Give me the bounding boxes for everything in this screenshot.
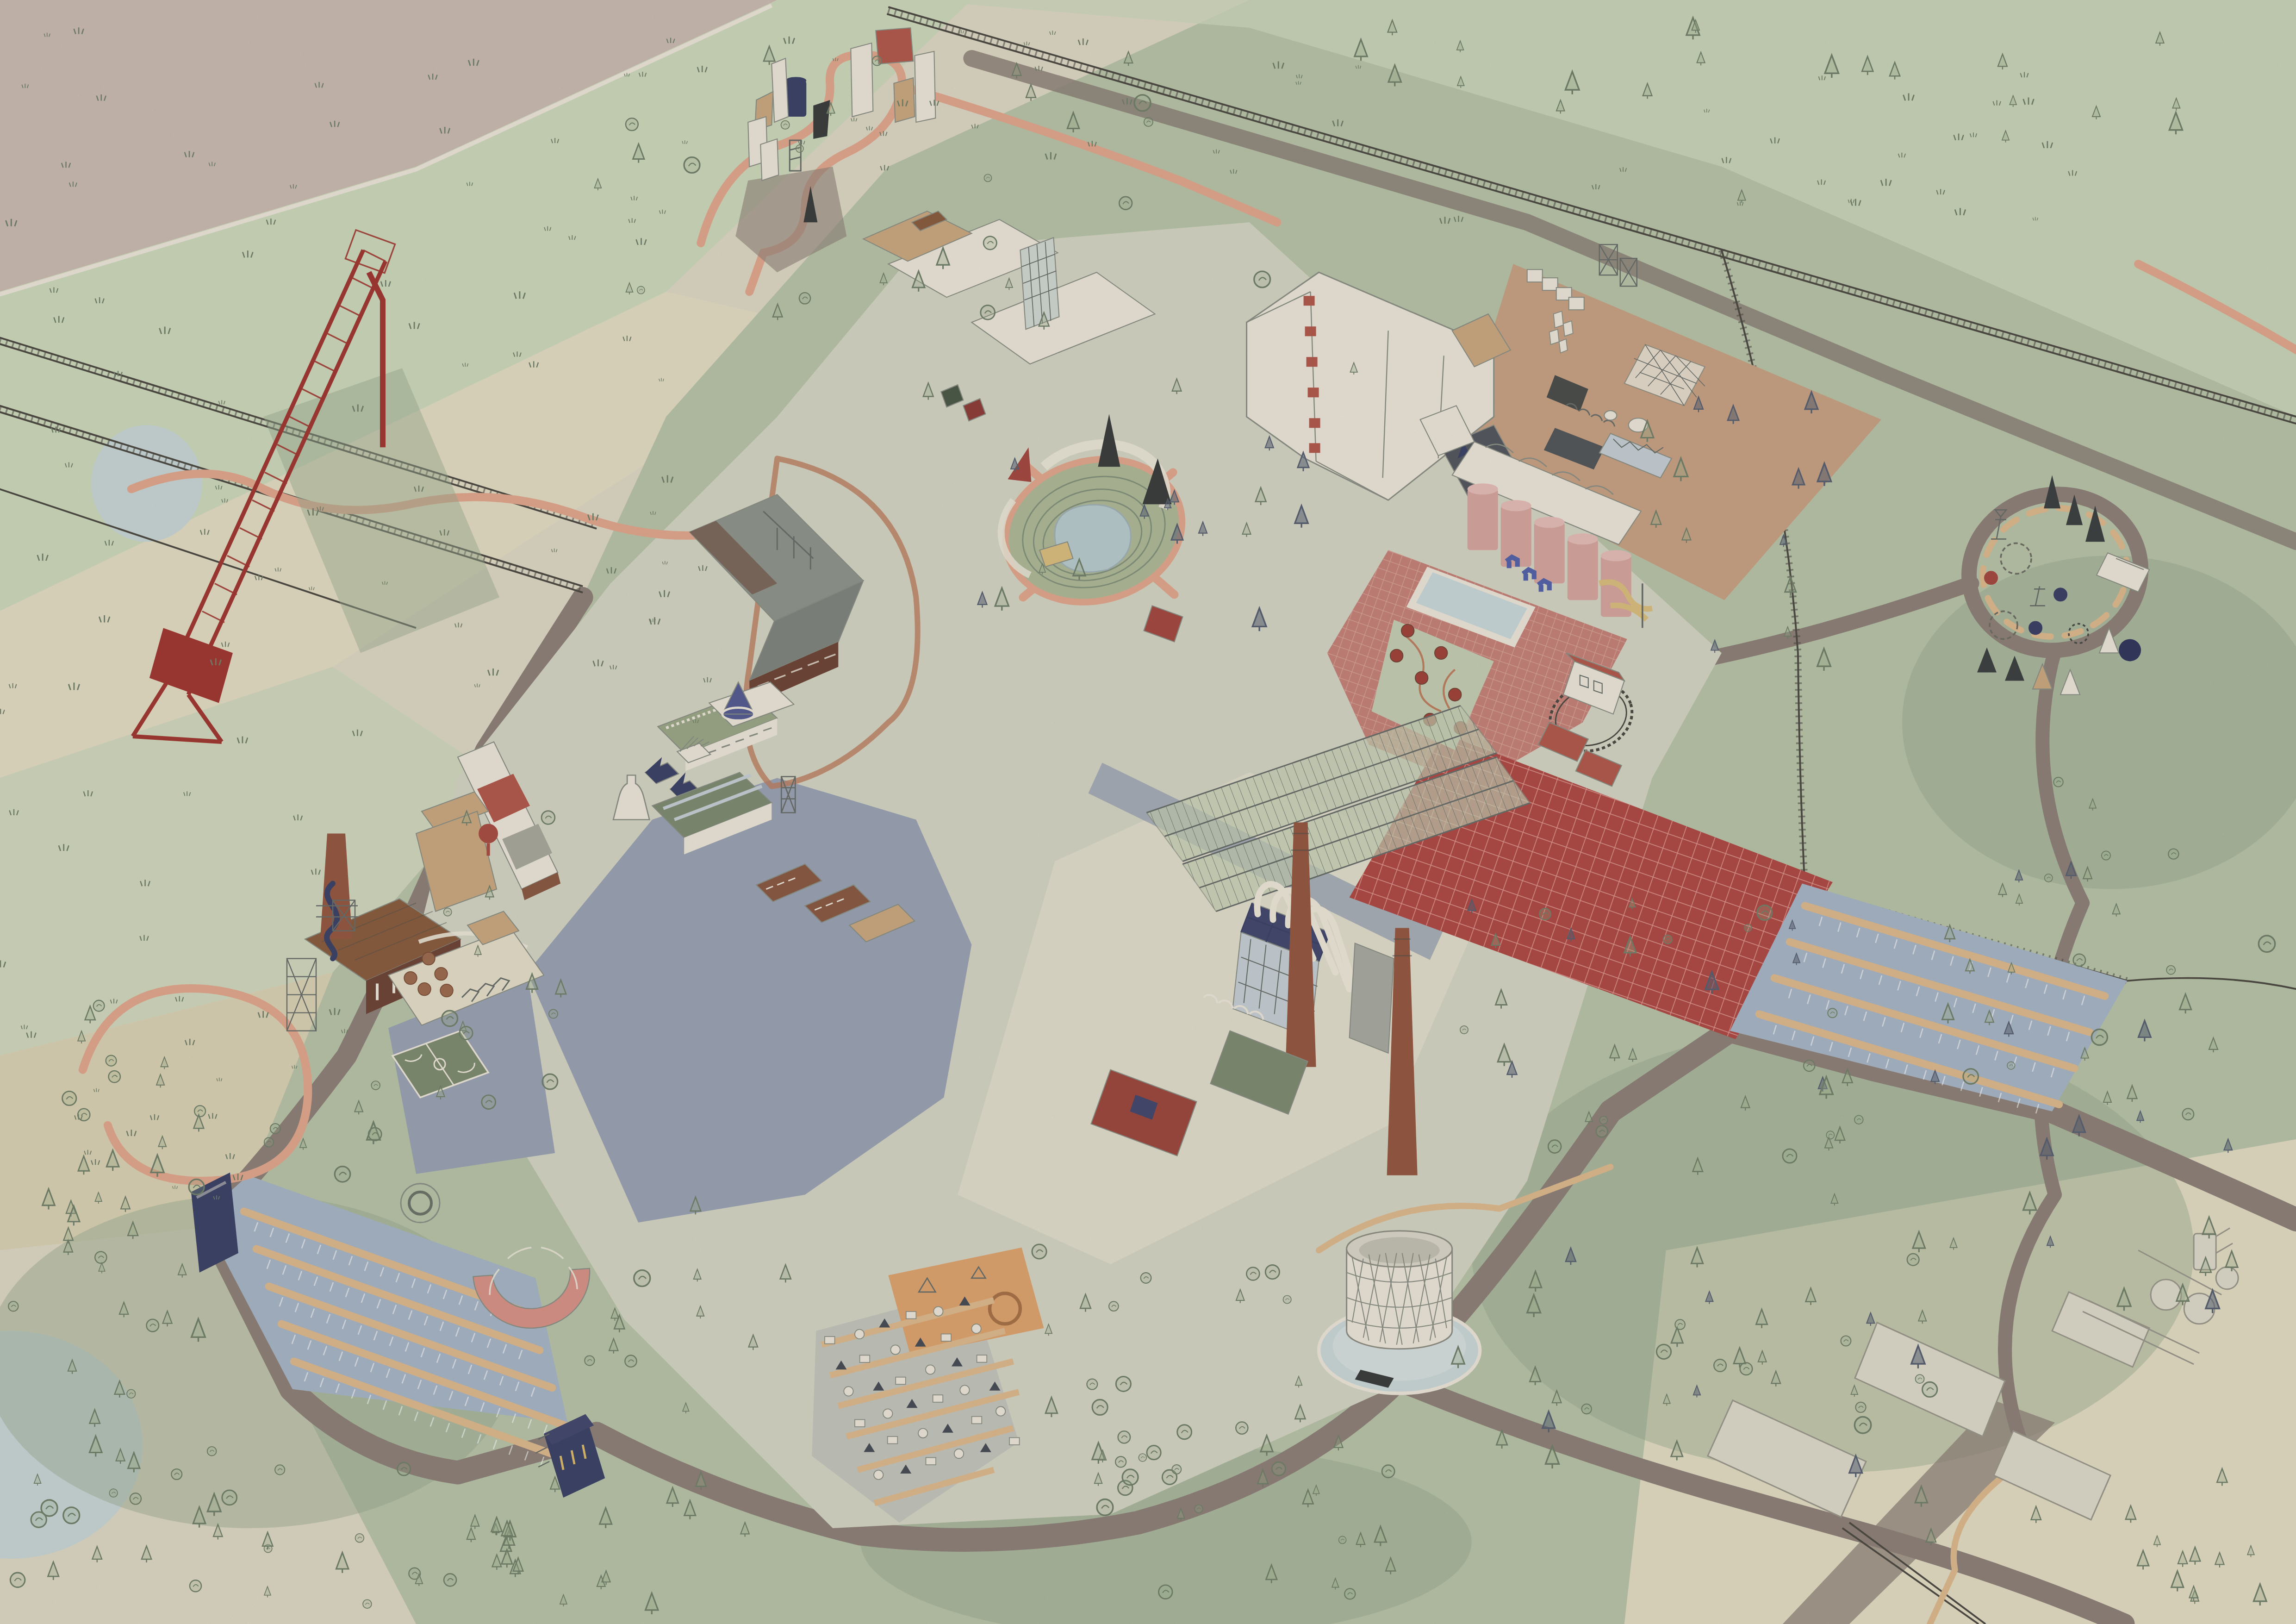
masterplan-stage [0,0,2296,1624]
paper-grain [0,0,2296,1624]
masterplan-illustration [0,0,2296,1624]
